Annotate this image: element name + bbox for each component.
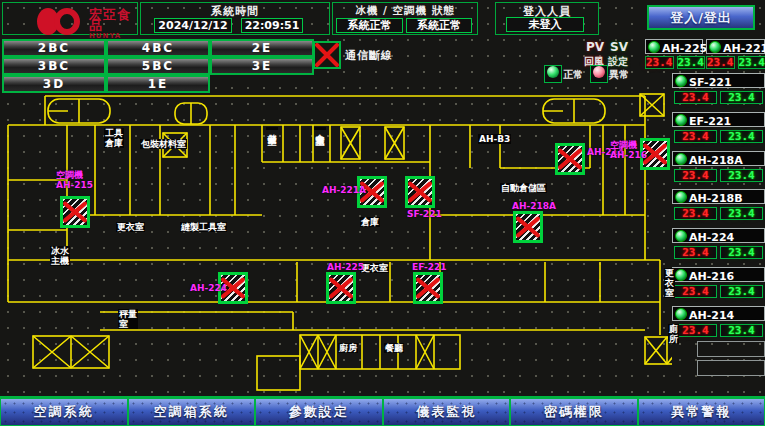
equipment-icon-ah-225[interactable] [326, 272, 356, 304]
equipment-label: AH-218A [512, 201, 556, 211]
unit-button[interactable]: AH-221A [706, 39, 765, 54]
unit-values: 23.423.4 [674, 324, 763, 337]
brand-name: 宏亞食品 [89, 9, 137, 31]
room-label: 冰水 主機 [50, 246, 70, 266]
room-label: 秤量 室 [118, 309, 138, 329]
unit-status-led-icon [675, 269, 687, 281]
login-logout-button[interactable]: 登入/登出 [647, 5, 755, 30]
footer-button-密碼權限[interactable]: 密碼權限 [510, 398, 638, 426]
unit-button[interactable]: AH-224 [672, 228, 765, 243]
pv-value: 23.4 [674, 169, 717, 182]
floor-button-2e[interactable]: 2E [210, 39, 314, 57]
system-date-value: 2024/12/12 [154, 18, 232, 33]
unit-button[interactable]: AH-218B [672, 189, 765, 204]
unit-values: 23.423.4 [674, 246, 763, 259]
unit-label: AH-216 [689, 270, 734, 283]
system-clock-value: 22:09:51 [241, 18, 303, 33]
room-label: 包裝材料室 [140, 139, 187, 149]
unit-button[interactable]: AH-218A [672, 151, 765, 166]
footer-button-空調箱系統[interactable]: 空調箱系統 [128, 398, 256, 426]
unit-label: AH-224 [689, 231, 734, 244]
pv-value: 23.4 [674, 246, 717, 259]
sv-value: 23.4 [720, 91, 763, 104]
unit-label: AH-221A [723, 42, 765, 55]
unit-values: 23.423.4 [674, 91, 763, 104]
pv-value: 23.4 [674, 285, 717, 298]
floor-button-2bc[interactable]: 2BC [2, 39, 106, 57]
room-label: AH-B3 [478, 134, 511, 144]
room-label: 廚房 [338, 343, 358, 353]
equipment-label: SF-221 [407, 209, 442, 219]
unit-label: AH-214 [689, 309, 734, 322]
unit-button[interactable]: AH-225 [645, 39, 703, 54]
normal-led-icon [544, 65, 562, 83]
abnormal-legend-label: 異常 [609, 68, 629, 82]
unit-values: 23.423.4 [674, 130, 763, 143]
floor-button-4bc[interactable]: 4BC [106, 39, 210, 57]
room-label: 縫製工具室 [180, 222, 227, 232]
footer-button-異常警報[interactable]: 異常警報 [638, 398, 765, 426]
pv-value: 23.4 [674, 324, 717, 337]
equipment-icon-ah-214[interactable] [555, 143, 585, 175]
hmi-screen: 宏亞食品 HUNYA FOODS 系統時間 2024/12/12 22:09:5… [0, 0, 765, 426]
floor-button-3e[interactable]: 3E [210, 57, 314, 75]
room-label: 儲藏室 [266, 127, 278, 130]
sv-value: 23.4 [720, 324, 763, 337]
unit-label: AH-225 [662, 42, 707, 55]
pv-value: 23.4 [674, 130, 717, 143]
sv-value: 23.4 [720, 130, 763, 143]
pv-value: 23.4 [706, 56, 735, 69]
machine-status-label: 冰機 / 空調機 狀態 [333, 4, 477, 18]
equipment-icon-ah-218a[interactable] [513, 211, 543, 243]
equipment-icon-ef-221[interactable] [413, 272, 443, 304]
footer-button-參數設定[interactable]: 參數設定 [255, 398, 383, 426]
unit-status-led-icon [675, 153, 687, 165]
comm-loss-label: 通信斷線 [345, 48, 393, 63]
room-label: 更衣室 [116, 222, 145, 232]
normal-legend-label: 正常 [563, 68, 583, 82]
ahu-status-value: 系統正常 [406, 18, 472, 33]
unit-values: 23.423.4 [674, 169, 763, 182]
unit-label: EF-221 [689, 115, 731, 128]
sv-value: 23.4 [677, 56, 706, 69]
equipment-label: 空調機 AH-215 [56, 170, 93, 190]
system-time-label: 系統時間 [141, 4, 329, 19]
floor-button-5bc[interactable]: 5BC [106, 57, 210, 75]
unit-values: 23.423.4 [674, 207, 763, 220]
spare-slot [697, 341, 765, 357]
unit-label: SF-221 [689, 76, 732, 89]
spare-slot [697, 360, 765, 376]
footer-button-空調系統[interactable]: 空調系統 [0, 398, 128, 426]
footer-nav: 空調系統空調箱系統參數設定儀表監視密碼權限異常警報 [0, 396, 765, 426]
floor-plan-walls [0, 92, 672, 398]
pv-legend-label: PV [586, 40, 604, 54]
pv-value: 23.4 [674, 207, 717, 220]
floor-button-1e[interactable]: 1E [106, 75, 210, 93]
footer-button-儀表監視[interactable]: 儀表監視 [383, 398, 511, 426]
sv-legend-label: SV [610, 40, 628, 54]
unit-status-led-icon [648, 41, 660, 53]
floor-button-3d[interactable]: 3D [2, 75, 106, 93]
equipment-label: EF-221 [412, 262, 447, 272]
sv-value: 23.4 [720, 285, 763, 298]
equipment-label: AH-225 [327, 262, 364, 272]
unit-status-led-icon [675, 308, 687, 320]
floor-nav: 2BC4BC2E3BC5BC3E3D1E [2, 39, 314, 93]
company-logo-icon [37, 8, 83, 35]
equipment-icon-空調機-ah-215[interactable] [60, 196, 90, 228]
floor-button-3bc[interactable]: 3BC [2, 57, 106, 75]
unit-button[interactable]: EF-221 [672, 112, 765, 127]
abnormal-led-icon [590, 65, 608, 83]
comm-loss-icon [313, 41, 341, 69]
unit-status-led-icon [675, 75, 687, 87]
room-label: 倉庫 [360, 217, 380, 227]
unit-status-led-icon [675, 191, 687, 203]
equipment-label: AH-224 [190, 283, 227, 293]
logo-panel: 宏亞食品 HUNYA FOODS [2, 2, 138, 35]
room-label: 會議室 [314, 127, 326, 130]
room-label: 工具 倉庫 [104, 128, 124, 148]
pv-value: 23.4 [645, 56, 674, 69]
unit-status-led-icon [675, 114, 687, 126]
unit-button[interactable]: AH-216 [672, 267, 765, 282]
room-label: 更衣室 [360, 263, 389, 273]
unit-button[interactable]: SF-221 [672, 73, 765, 88]
sv-value: 23.4 [738, 56, 765, 69]
equipment-label: AH-221A [322, 185, 366, 195]
equipment-icon-sf-221[interactable] [405, 176, 435, 208]
room-label: 餐廳 [384, 343, 404, 353]
unit-values: 23.423.4 [674, 285, 763, 298]
sv-value: 23.4 [720, 169, 763, 182]
unit-button[interactable]: AH-214 [672, 306, 765, 321]
sv-value: 23.4 [720, 246, 763, 259]
room-label: 更衣室 [664, 268, 675, 298]
login-user-value: 未登入 [506, 17, 584, 32]
floor-plan-map: 空調機 AH-215AH-221ASF-221AH-214空調機 AH-216A… [0, 92, 672, 398]
room-label: 自動倉儲區 [500, 183, 547, 193]
equipment-label: 空調機 AH-216 [610, 140, 647, 160]
sv-meaning-label: 設定 [608, 55, 628, 69]
sv-value: 23.4 [720, 207, 763, 220]
unit-status-led-icon [709, 41, 721, 53]
chiller-status-value: 系統正常 [336, 18, 403, 33]
unit-status-led-icon [675, 230, 687, 242]
room-label: 廁所 [668, 324, 679, 344]
pv-value: 23.4 [674, 91, 717, 104]
unit-label: AH-218A [689, 154, 743, 167]
unit-label: AH-218B [689, 192, 743, 205]
